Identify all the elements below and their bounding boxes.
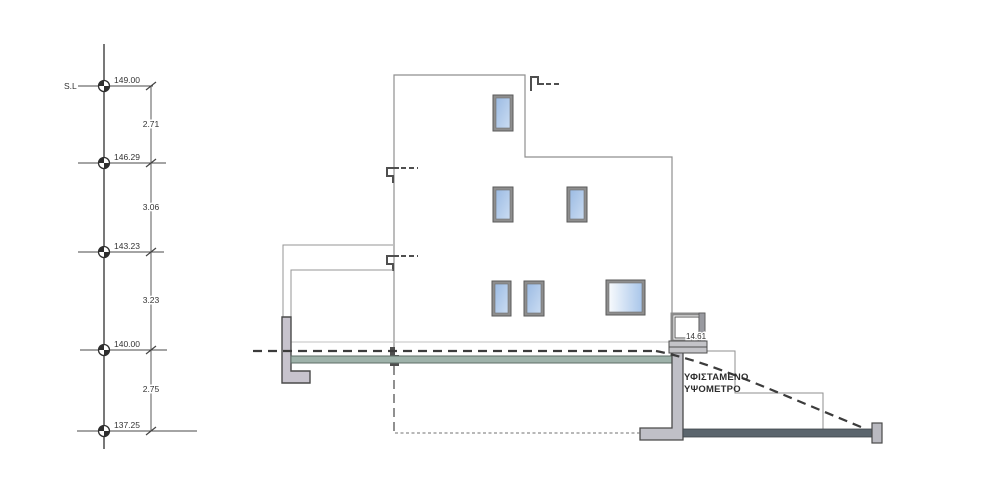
slab-end-block xyxy=(872,423,882,443)
drawing-svg: 14.61 ΥΦΙΣΤΑΜΕΝΟ ΥΨΟΜΕΤΡΟ xyxy=(0,0,1000,500)
unit-label: 14.61 xyxy=(686,332,707,341)
elevation-drawing: 14.61 ΥΦΙΣΤΑΜΕΝΟ ΥΨΟΜΕΤΡΟ xyxy=(0,0,1000,500)
level-value: 137.25 xyxy=(114,420,140,430)
span-dimension: 3.23 xyxy=(143,295,160,305)
ground-label-line2: ΥΨΟΜΕΤΡΟ xyxy=(684,384,741,395)
window xyxy=(567,187,587,222)
window xyxy=(492,281,511,316)
level-value: 143.23 xyxy=(114,241,140,251)
level-marker xyxy=(99,247,110,258)
span-dimension: 2.71 xyxy=(143,119,160,129)
datum-label: S.L xyxy=(64,81,77,91)
terrace-outline xyxy=(283,245,393,317)
window-large xyxy=(606,280,645,315)
foundation-slab xyxy=(683,429,873,437)
level-marker xyxy=(99,81,110,92)
ground-label-line1: ΥΦΙΣΤΑΜΕΝΟ xyxy=(684,372,749,383)
basement-outline-dashed xyxy=(394,366,640,433)
level-marker xyxy=(99,158,110,169)
window xyxy=(524,281,544,316)
level-value: 140.00 xyxy=(114,339,140,349)
deck-slab xyxy=(291,356,672,363)
span-dimension: 2.75 xyxy=(143,384,160,394)
level-value: 149.00 xyxy=(114,75,140,85)
level-scale: S.L 149.00 146.29 143.23 140.00 137.25 2… xyxy=(64,44,197,449)
louver-bar xyxy=(669,341,707,347)
span-dimension: 3.06 xyxy=(143,202,160,212)
window xyxy=(493,187,513,222)
louver-bar xyxy=(669,347,707,353)
window xyxy=(493,95,513,131)
retaining-wall-right xyxy=(640,352,683,440)
level-marker xyxy=(99,345,110,356)
level-value: 146.29 xyxy=(114,152,140,162)
level-marker xyxy=(99,426,110,437)
building-elevation xyxy=(291,75,672,366)
level-lines xyxy=(77,86,197,431)
